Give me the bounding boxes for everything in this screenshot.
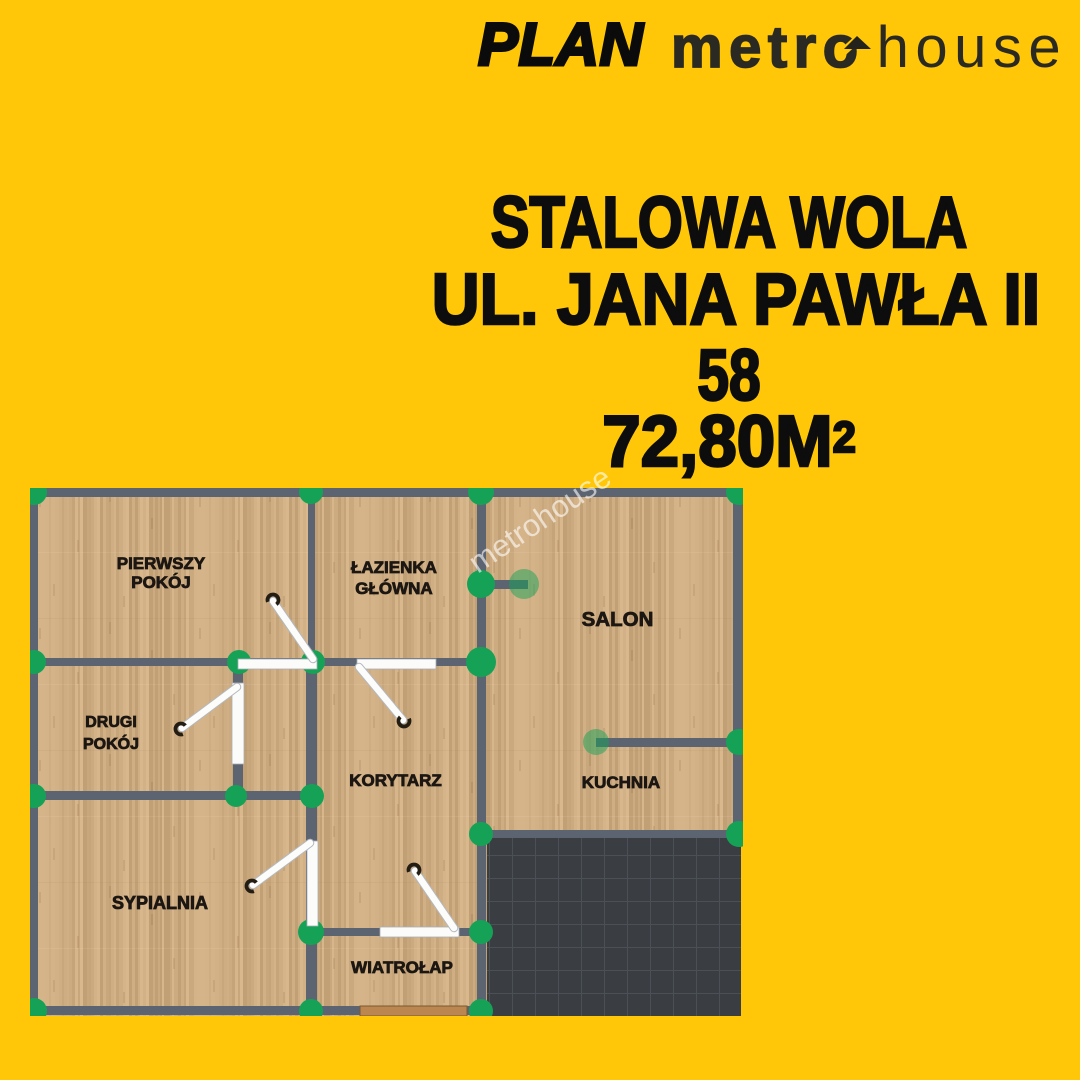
svg-text:KUCHNIA: KUCHNIA [582, 773, 660, 792]
svg-text:WIATROŁAP: WIATROŁAP [351, 958, 453, 977]
svg-text:PIERWSZY: PIERWSZY [117, 554, 206, 573]
svg-text:SYPIALNIA: SYPIALNIA [112, 893, 208, 913]
svg-text:POKÓJ: POKÓJ [83, 734, 139, 753]
svg-text:GŁÓWNA: GŁÓWNA [355, 579, 432, 598]
svg-text:KORYTARZ: KORYTARZ [349, 771, 442, 790]
svg-text:DRUGI: DRUGI [85, 714, 137, 731]
svg-text:ŁAZIENKA: ŁAZIENKA [351, 558, 437, 577]
svg-text:SALON: SALON [582, 608, 654, 631]
svg-text:POKÓJ: POKÓJ [131, 573, 191, 592]
